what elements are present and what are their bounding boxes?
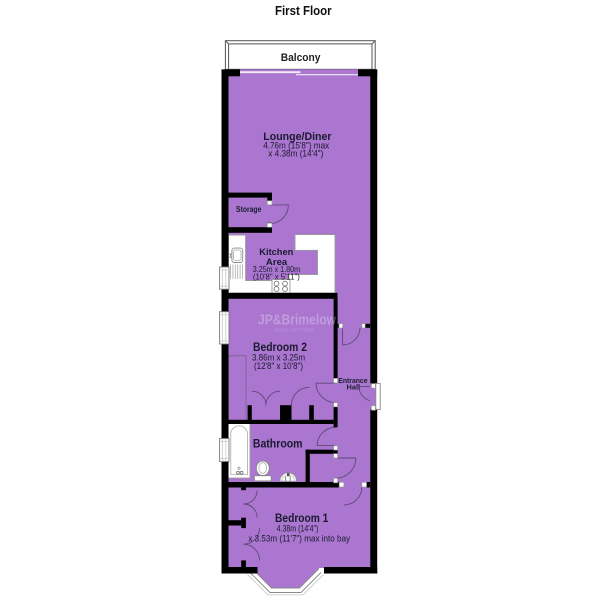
svg-text:Kitchen: Kitchen: [259, 247, 293, 257]
svg-text:First Floor: First Floor: [275, 3, 332, 18]
svg-text:SALES LETTINGS: SALES LETTINGS: [274, 328, 314, 333]
svg-text:JP&Brimelow: JP&Brimelow: [258, 312, 336, 329]
svg-text:x 3.53m (11'7") max into bay: x 3.53m (11'7") max into bay: [248, 533, 350, 543]
svg-text:Balcony: Balcony: [281, 52, 321, 64]
svg-text:Bathroom: Bathroom: [253, 437, 303, 451]
svg-text:(12'8" x 10'8"): (12'8" x 10'8"): [254, 361, 303, 371]
svg-text:x 4.38m (14'4"): x 4.38m (14'4"): [268, 149, 323, 159]
svg-text:4.38m (14'4"): 4.38m (14'4"): [277, 523, 319, 533]
svg-text:Storage: Storage: [236, 205, 262, 214]
svg-text:Hall: Hall: [347, 383, 361, 392]
svg-text:(10'8" x 5'11"): (10'8" x 5'11"): [253, 273, 300, 282]
